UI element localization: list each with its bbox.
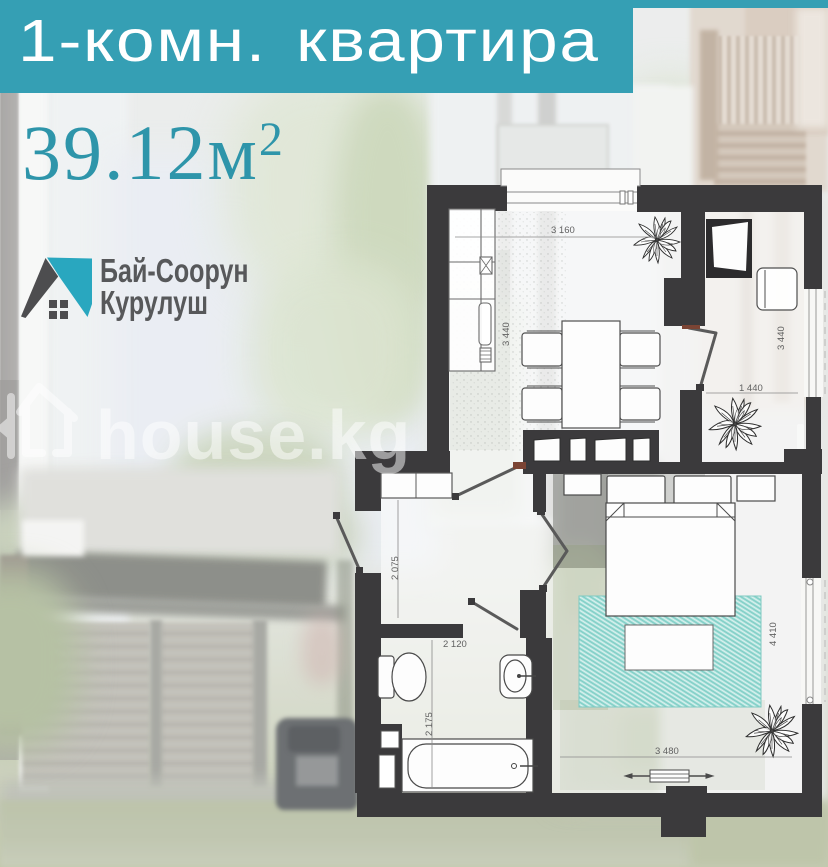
svg-text:3 440: 3 440 — [776, 326, 787, 350]
svg-text:2 175: 2 175 — [424, 712, 435, 736]
svg-text:3 160: 3 160 — [551, 225, 575, 236]
svg-text:2 075: 2 075 — [390, 556, 401, 580]
svg-text:3 440: 3 440 — [501, 322, 512, 346]
svg-text:house.kg: house.kg — [96, 396, 411, 474]
svg-text:3 480: 3 480 — [655, 746, 679, 757]
svg-text:2 120: 2 120 — [443, 639, 467, 650]
svg-text:1 440: 1 440 — [739, 383, 763, 394]
svg-text:4 410: 4 410 — [768, 622, 779, 646]
